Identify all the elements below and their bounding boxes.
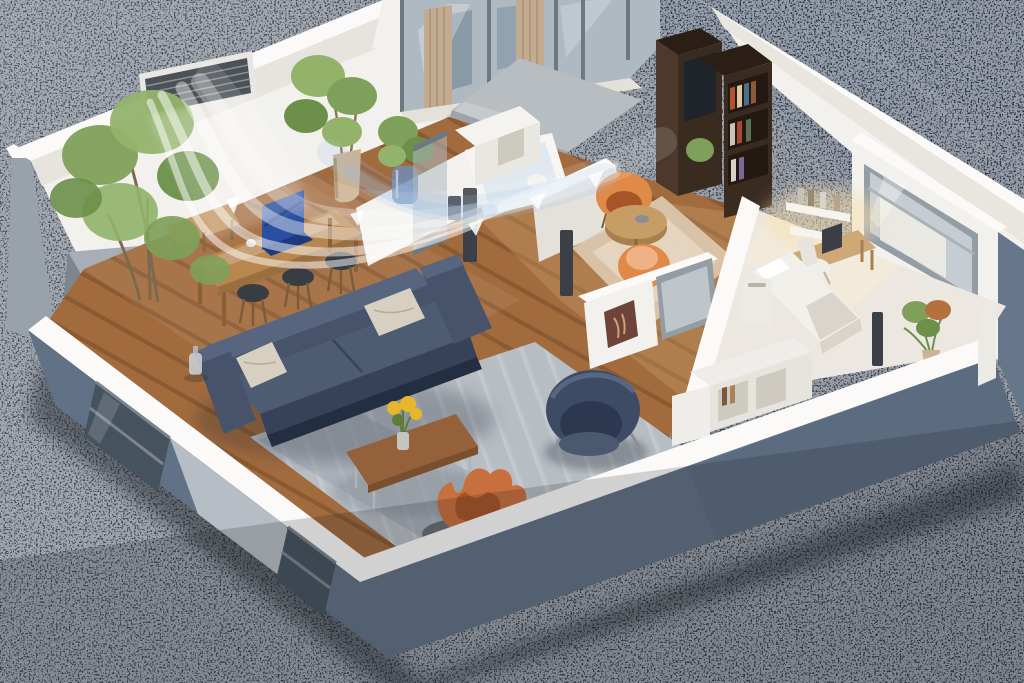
plant-flowers xyxy=(925,300,951,320)
stool-top xyxy=(282,268,314,286)
chair-seat xyxy=(626,246,658,270)
shelf-books xyxy=(820,192,826,208)
purifier-vent-slit xyxy=(748,283,766,287)
flower xyxy=(410,408,422,420)
door-post xyxy=(872,312,883,366)
table-top xyxy=(605,205,667,239)
ficus-foliage xyxy=(284,99,328,133)
flower-leaf xyxy=(392,414,404,426)
plant-foliage xyxy=(378,145,406,167)
table-dish xyxy=(635,215,649,223)
cube-books xyxy=(722,387,727,406)
jug-neck xyxy=(193,346,198,355)
tree-foliage xyxy=(144,216,200,260)
curtain-left xyxy=(424,5,452,114)
bookshelf-left-front xyxy=(656,40,678,196)
shelf-books xyxy=(808,190,814,206)
plant-leaves xyxy=(916,319,940,337)
tree-foliage-small xyxy=(190,255,230,285)
cube-books xyxy=(730,385,735,404)
shelf-books xyxy=(834,195,840,211)
rendered-scene xyxy=(0,0,1024,683)
flower xyxy=(387,401,401,415)
cube-shelf-return xyxy=(672,386,710,446)
tree-foliage xyxy=(50,178,102,218)
stool-top xyxy=(237,284,269,302)
ficus-foliage xyxy=(327,77,377,115)
chair-front-lip xyxy=(559,432,619,456)
vase xyxy=(397,432,409,450)
jug-body xyxy=(189,353,202,375)
door-post xyxy=(560,230,573,296)
jug-shadow xyxy=(184,374,208,382)
air-purifier xyxy=(742,278,772,326)
corner-post xyxy=(978,300,996,386)
shelf-books xyxy=(798,188,804,204)
bookshelf-plant xyxy=(686,138,714,162)
